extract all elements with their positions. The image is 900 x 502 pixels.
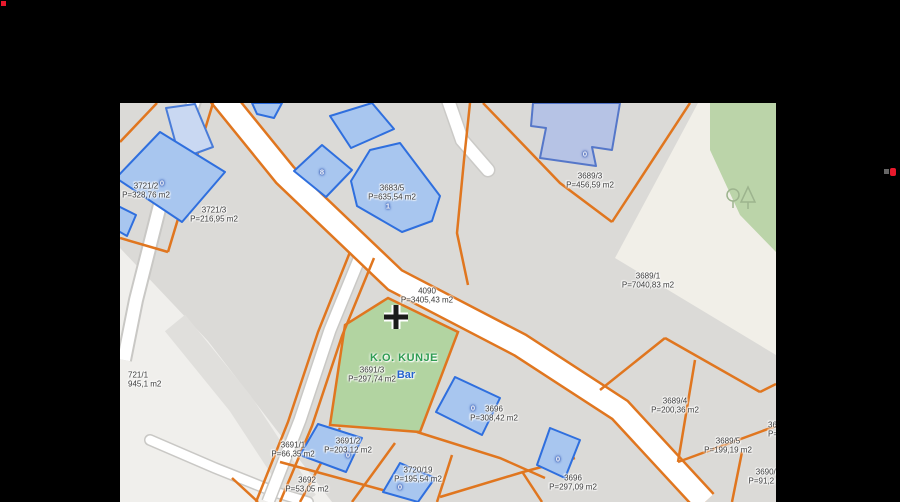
screen: { "window": { "background": "#000000", "…: [0, 0, 900, 502]
district-label: K.O. KUNJE: [370, 352, 438, 364]
edge-gray-square: [884, 169, 889, 174]
place-label: Bar: [397, 369, 415, 381]
record-dot-top-left: [1, 1, 6, 6]
map-canvas[interactable]: 3721/2P=328,76 m2 3721/3P=216,95 m2 3683…: [120, 103, 776, 502]
edge-red-dot: [890, 168, 896, 176]
map-graphics: [120, 103, 776, 502]
